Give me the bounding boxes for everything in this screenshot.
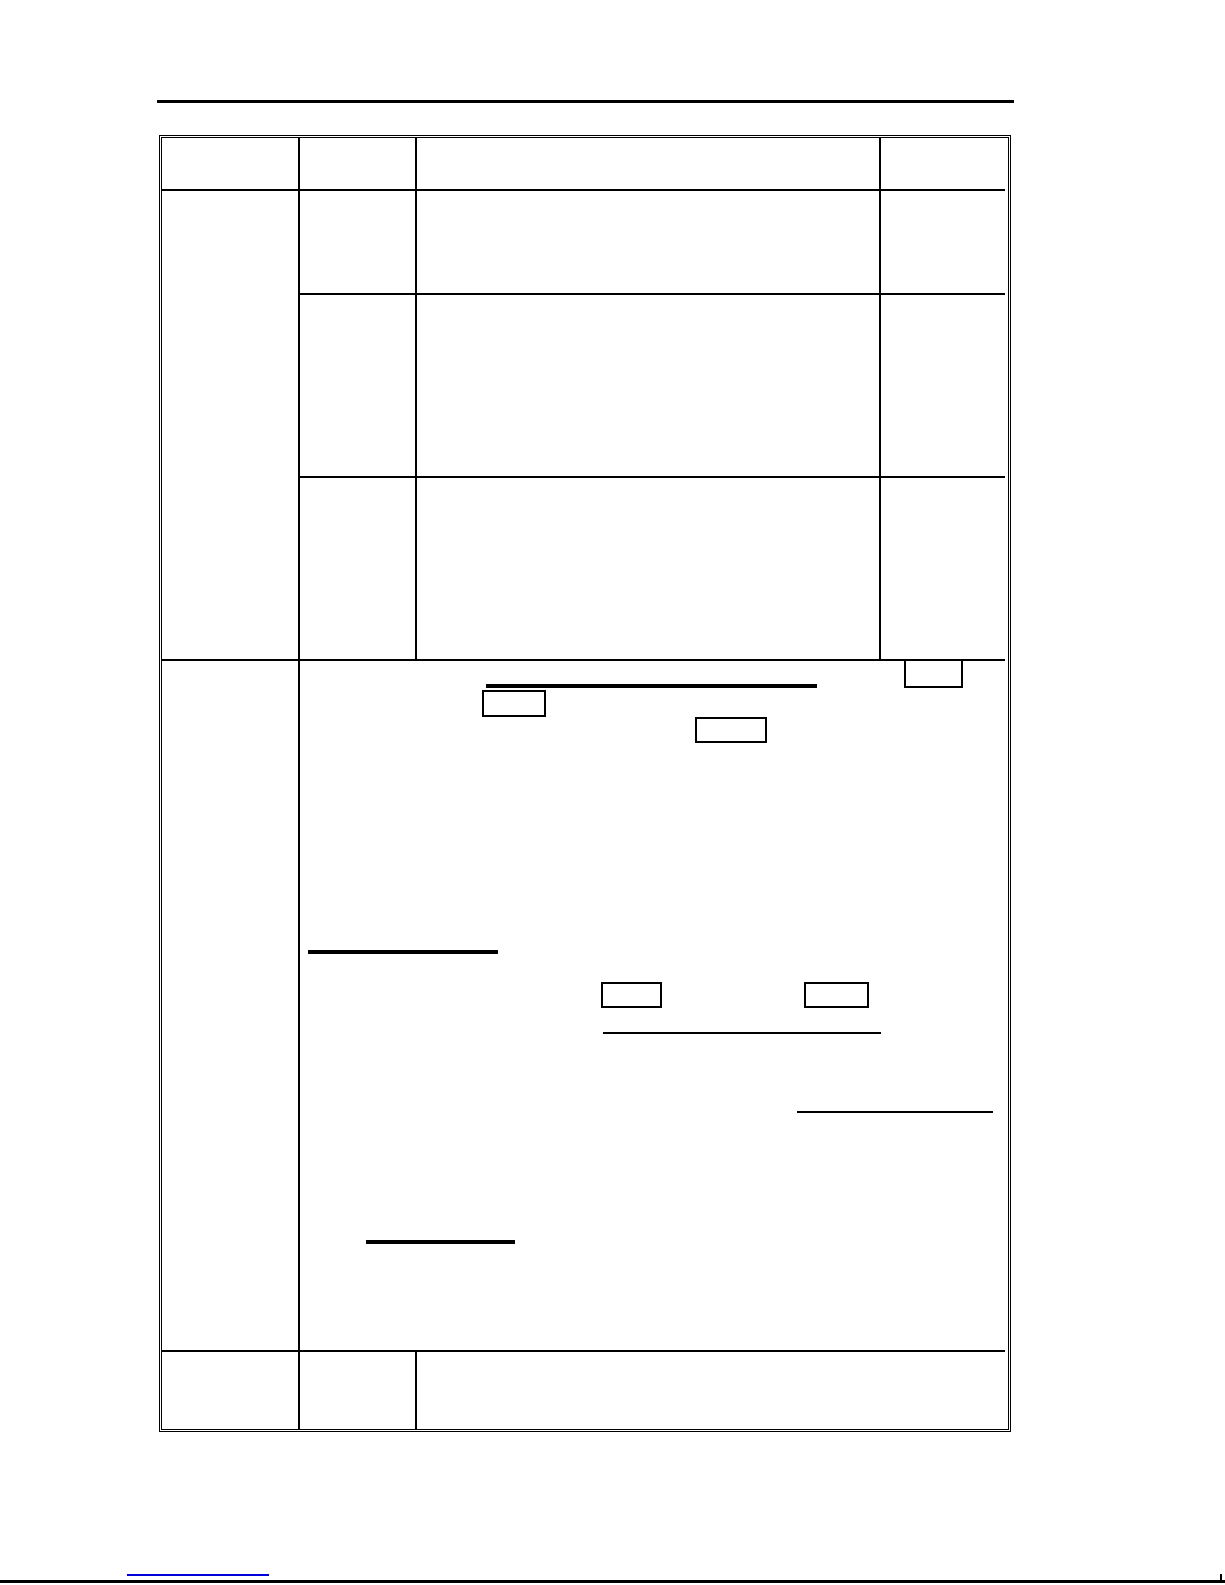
table-row-divider-2	[299, 476, 1005, 478]
blank-underline-4	[797, 1111, 993, 1113]
blank-box-1[interactable]	[482, 690, 546, 717]
header-cell-1	[162, 140, 298, 189]
page-bottom-corner-tick	[1220, 1574, 1222, 1580]
header-cell-4	[881, 140, 1005, 189]
top-horizontal-rule	[157, 100, 1014, 103]
header-cell-2	[300, 140, 415, 189]
footer-link[interactable]	[127, 1564, 269, 1576]
last-row-merged-cell	[417, 1352, 1005, 1429]
blank-box-3[interactable]	[601, 982, 662, 1008]
big-row-first-column-cell	[162, 661, 298, 1350]
blank-box-4[interactable]	[804, 982, 869, 1008]
table-column-divider-3	[879, 138, 881, 661]
blank-underline-5	[366, 1240, 515, 1244]
table-row-divider-1	[299, 293, 1005, 295]
last-row-cell-1	[162, 1352, 298, 1429]
blank-box-top-right[interactable]	[904, 659, 963, 688]
body-first-column-merged-cell	[162, 191, 298, 659]
blank-underline-1	[486, 684, 817, 688]
blank-underline-2	[308, 950, 498, 954]
page-bottom-edge-line	[0, 1580, 1225, 1583]
document-page	[0, 0, 1225, 1585]
blank-underline-3	[603, 1032, 881, 1034]
header-cell-3	[417, 140, 879, 189]
blank-box-2[interactable]	[695, 717, 767, 743]
last-row-cell-2	[300, 1352, 415, 1429]
table-column-divider-2-upper	[415, 138, 417, 661]
